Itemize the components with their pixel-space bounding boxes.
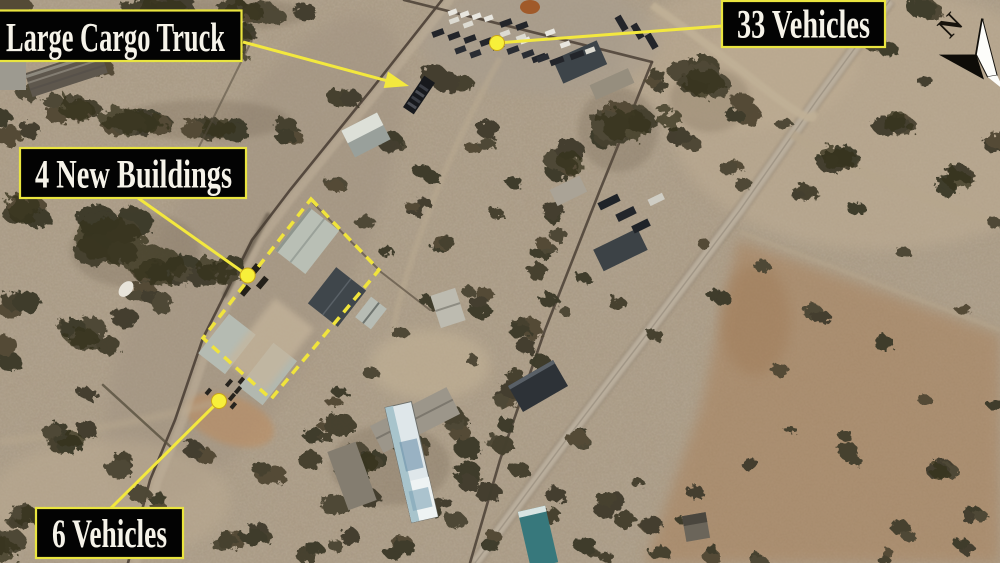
svg-text:Large Cargo Truck: Large Cargo Truck — [6, 14, 225, 60]
svg-text:33 Vehicles: 33 Vehicles — [737, 2, 870, 47]
svg-text:4 New Buildings: 4 New Buildings — [35, 152, 232, 197]
svg-text:6 Vehicles: 6 Vehicles — [52, 511, 167, 556]
